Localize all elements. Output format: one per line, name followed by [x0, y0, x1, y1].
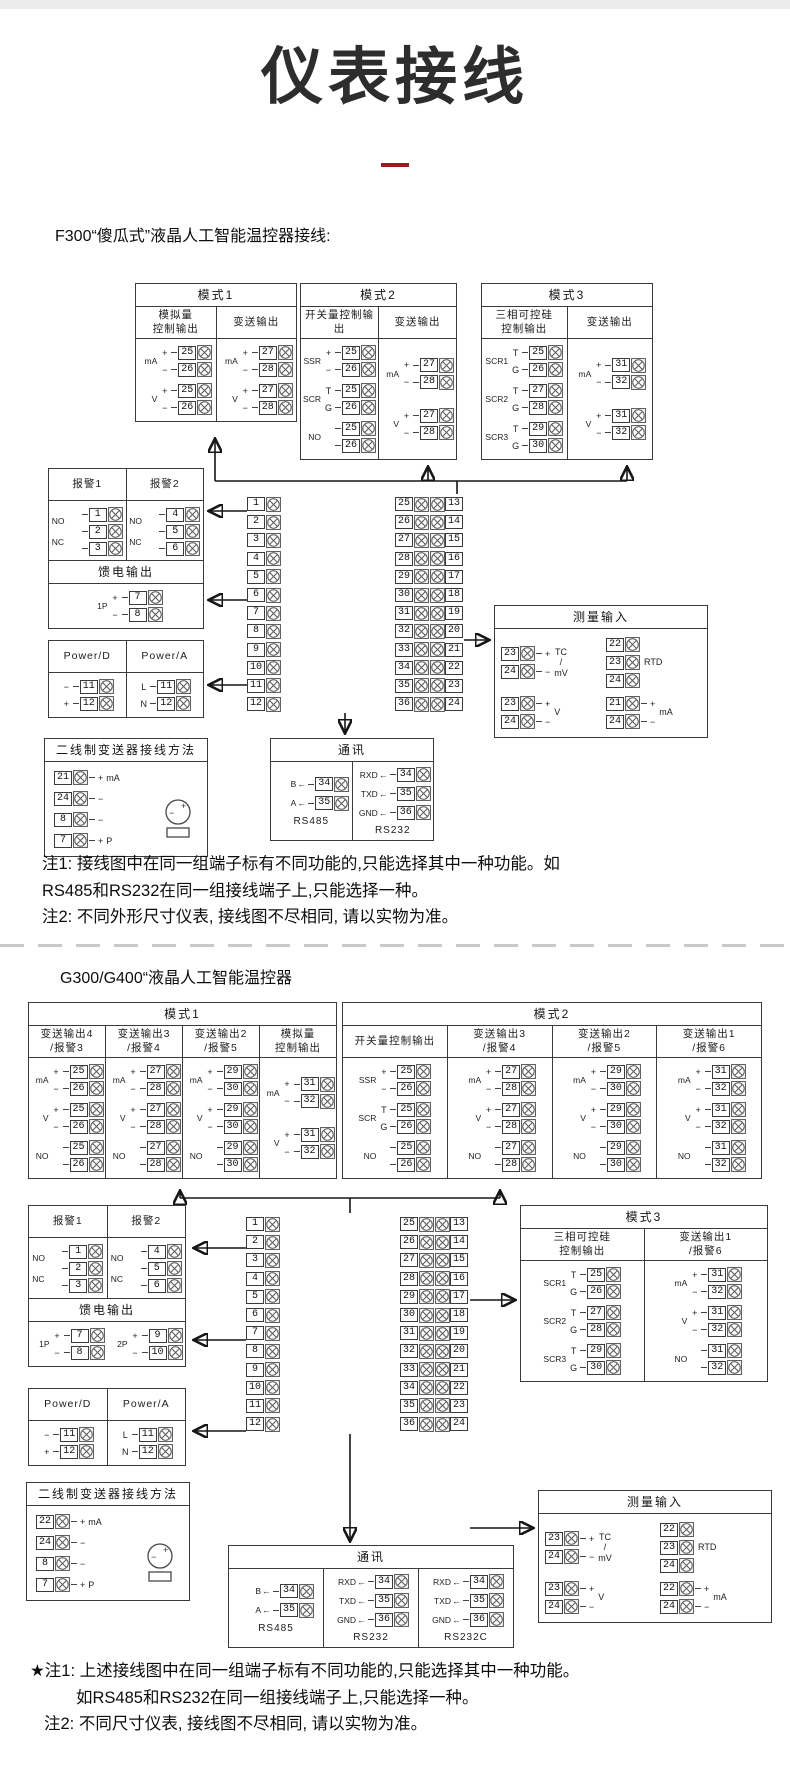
screw-terminal-icon — [266, 697, 281, 712]
terminal-row: 26 — [323, 437, 376, 454]
column-header: 报警2 — [108, 1206, 186, 1238]
terminal-number: 21 — [445, 643, 463, 657]
terminal-row: 19 — [429, 604, 463, 622]
terminal-number: 24 — [501, 715, 519, 729]
terminal-number: 32 — [400, 1344, 418, 1358]
wire-stub — [273, 1591, 279, 1592]
terminal-row: 23 — [429, 677, 463, 695]
wire-stub — [368, 1600, 374, 1601]
panel-column: 1P+7−8 — [49, 584, 203, 628]
wire-stub — [641, 721, 647, 722]
terminal-row: G26 — [568, 1283, 621, 1300]
group-label: NO — [108, 1151, 127, 1161]
terminal-number: 24 — [545, 1600, 563, 1614]
terminal-polarity: − — [689, 1325, 700, 1335]
terminal-polarity: + — [80, 1517, 85, 1527]
terminal-number: 28 — [147, 1120, 165, 1134]
screw-terminal-icon — [679, 1599, 694, 1614]
column-header: 报警1 — [29, 1206, 107, 1238]
terminal-group: 1P+7−8 — [32, 1327, 105, 1361]
wire-stub — [53, 1451, 59, 1452]
screw-terminal-icon — [89, 1102, 104, 1117]
screw-terminal-icon — [430, 588, 445, 603]
screw-terminal-icon — [416, 1119, 431, 1134]
wire-stub — [171, 369, 177, 370]
terminal-row: −30 — [205, 1080, 258, 1097]
terminal-group: NO2526 — [303, 420, 376, 454]
terminal-row: 24 — [429, 695, 463, 713]
screw-terminal-icon — [435, 1380, 450, 1395]
terminal-number: 27 — [420, 358, 438, 372]
panel-column: 变送输出1 /报警6mA+31−32V+31−32NO3132 — [657, 1026, 761, 1178]
terminal-row: 1 — [247, 495, 281, 513]
wire-stub — [701, 1291, 707, 1292]
terminal-row: 27 — [400, 1251, 434, 1269]
terminal-row: 30 — [588, 1156, 641, 1173]
terminal-polarity: + — [98, 773, 103, 783]
terminal-number: 23 — [660, 1541, 678, 1555]
terminal-row: 1 — [70, 506, 123, 523]
terminal-group: V+25−26 — [31, 1101, 104, 1135]
terminal-row: 34 — [395, 659, 429, 677]
wire-stub — [580, 1291, 586, 1292]
terminal-polarity: G — [568, 1363, 579, 1373]
terminal-polarity: − — [545, 667, 550, 677]
g300-mode1-panel: 模式1变送输出4 /报警3mA+25−26V+25−26NO2526变送输出3 … — [28, 1002, 337, 1179]
g300-note-line: 如RS485和RS232在同一组接线端子上,只能选择一种。 — [30, 1685, 774, 1712]
terminal-number: 9 — [149, 1329, 167, 1343]
terminal-number: 31 — [400, 1326, 418, 1340]
screw-terminal-icon — [631, 358, 646, 373]
terminal-tag: P — [106, 836, 112, 846]
terminal-number: 11 — [246, 1399, 264, 1413]
wire-stub — [71, 1584, 77, 1585]
group-label: NONC — [52, 506, 69, 557]
terminal-polarity: − — [545, 717, 550, 727]
terminal-number: 4 — [148, 1245, 166, 1259]
terminal-number: 24 — [450, 1417, 468, 1431]
screw-terminal-icon — [548, 421, 563, 436]
wire-stub — [605, 432, 611, 433]
terminal-row: 31 — [693, 1139, 746, 1156]
terminal-row: 3 — [246, 1251, 280, 1269]
terminal-polarity: + — [130, 1331, 141, 1341]
wire-stub — [701, 1312, 707, 1313]
terminal-number: 25 — [178, 384, 196, 398]
terminal-polarity: G — [568, 1325, 579, 1335]
terminal-number: 35 — [400, 1399, 418, 1413]
screw-terminal-icon — [626, 1064, 641, 1079]
screw-terminal-icon — [73, 812, 88, 827]
group-label: NO — [568, 1151, 587, 1161]
f300-mode1-panel: 模式1模拟量 控制输出mA+25−26V+25−26变送输出mA+27−28V+… — [135, 283, 297, 422]
comm-signal-label: GND — [333, 1615, 356, 1625]
terminal-number: 8 — [246, 1344, 264, 1358]
terminal-row: +27 — [483, 1063, 536, 1080]
screw-terminal-icon — [419, 1253, 434, 1268]
terminal-row: 29 — [205, 1139, 258, 1156]
screw-terminal-icon — [361, 400, 376, 415]
screw-terminal-icon — [265, 1362, 280, 1377]
screw-terminal-icon — [265, 1326, 280, 1341]
box-title: 模式3 — [521, 1206, 767, 1229]
wire-stub — [695, 1606, 701, 1607]
terminal-group: V+31−32 — [669, 1304, 742, 1338]
group-label: 2P — [110, 1339, 129, 1349]
terminal-row: 35 — [400, 1397, 434, 1415]
terminal-number: 24 — [660, 1559, 678, 1573]
terminal-row: N12 — [120, 1443, 173, 1460]
terminal-polarity: − — [704, 1602, 709, 1612]
wire-stub — [89, 840, 95, 841]
screw-terminal-icon — [435, 1253, 450, 1268]
terminal-number: 28 — [147, 1158, 165, 1172]
terminal-row: 8 — [246, 1342, 280, 1360]
screw-terminal-icon — [548, 345, 563, 360]
wire-stub — [536, 671, 542, 672]
screw-terminal-icon — [278, 345, 293, 360]
wire-stub — [605, 415, 611, 416]
comm-signal-label: RXD — [355, 770, 378, 780]
column-header: 变送输出1 /报警6 — [645, 1229, 768, 1261]
wire-stub — [63, 1126, 69, 1127]
box-title: 二线制变送器接线方法 — [45, 739, 207, 762]
terminal-number: 26 — [342, 363, 360, 377]
screw-terminal-icon — [548, 362, 563, 377]
panel-column: 变送输出mA+27−28V+27−28 — [217, 307, 297, 421]
g300-mode2-panel: 模式2开关量控制输出SSR+25−26SCRT25G26NO2526变送输出3 … — [342, 1002, 762, 1179]
column-header: 变送输出2 /报警5 — [183, 1026, 259, 1058]
f300-note-line: RS485和RS232在同一组接线端子上,只能选择一种。 — [42, 878, 764, 905]
terminal-polarity: − — [593, 428, 604, 438]
screw-terminal-icon — [606, 1284, 621, 1299]
wire-stub — [522, 407, 528, 408]
terminal-row: 24− — [545, 1548, 594, 1565]
wire-stub — [695, 1588, 701, 1589]
screw-terminal-icon — [416, 1140, 431, 1155]
wire-stub — [159, 548, 165, 549]
screw-terminal-icon — [419, 1344, 434, 1359]
terminal-number: 27 — [502, 1103, 520, 1117]
comm-signal-label: TXD — [355, 789, 378, 799]
wire-stub — [368, 1619, 374, 1620]
terminal-row: −32 — [593, 424, 646, 441]
column-header: 开关量控制输出 — [343, 1026, 447, 1058]
column-header: 报警2 — [127, 469, 204, 501]
terminal-number: 32 — [301, 1094, 319, 1108]
terminal-number: 31 — [301, 1077, 319, 1091]
terminal-row: −30 — [588, 1118, 641, 1135]
terminal-polarity: + — [593, 411, 604, 421]
terminal-number: 26 — [70, 1082, 88, 1096]
box-title: 模式2 — [301, 284, 456, 307]
terminal-row: 3 — [70, 540, 123, 557]
terminal-number: 12 — [247, 697, 265, 711]
wire-stub — [294, 1101, 300, 1102]
wire-stub — [335, 445, 341, 446]
terminal-row: 27 — [128, 1139, 181, 1156]
terminal-row: 23+ — [501, 695, 550, 712]
group-label: NO — [463, 1151, 482, 1161]
terminal-row: +25 — [51, 1101, 104, 1118]
terminal-polarity: G — [510, 441, 521, 451]
screw-terminal-icon — [625, 637, 640, 652]
terminal-row: 15 — [434, 1251, 468, 1269]
screw-terminal-icon — [334, 777, 349, 792]
terminal-polarity: + — [650, 699, 655, 709]
terminal-polarity: − — [282, 1096, 293, 1106]
group-label: NONC — [129, 506, 146, 557]
wire-stub — [171, 352, 177, 353]
column-header: 变送输出1 /报警6 — [657, 1026, 761, 1058]
terminal-number: 16 — [445, 552, 463, 566]
terminal-number: 12 — [139, 1445, 157, 1459]
screw-terminal-icon — [416, 786, 431, 801]
terminal-row: 5 — [246, 1288, 280, 1306]
terminal-polarity: + — [689, 1308, 700, 1318]
screw-terminal-icon — [394, 1612, 409, 1627]
wire-stub — [150, 703, 156, 704]
screw-terminal-icon — [626, 1140, 641, 1155]
screw-terminal-icon — [265, 1253, 280, 1268]
terminal-row: −28 — [483, 1080, 536, 1097]
terminal-number: 30 — [400, 1308, 418, 1322]
terminal-polarity: T — [510, 348, 521, 358]
terminal-row: A←35 — [238, 1602, 314, 1619]
screw-terminal-icon — [197, 362, 212, 377]
wire-stub — [82, 548, 88, 549]
wire-stub — [335, 390, 341, 391]
column-header: 变送输出 — [568, 307, 653, 339]
terminal-row: 10 — [246, 1379, 280, 1397]
terminal-number: 1 — [246, 1217, 264, 1231]
screw-terminal-icon — [167, 1244, 182, 1259]
panel-column: 变送输出mA+27−28V+27−28 — [379, 307, 456, 459]
terminal-polarity: + — [545, 699, 550, 709]
wire-stub — [368, 1581, 374, 1582]
terminal-group: SCR2T27G28 — [543, 1304, 621, 1338]
screw-terminal-icon — [731, 1157, 746, 1172]
terminal-row: L11 — [138, 678, 191, 695]
top-gray-bar — [0, 0, 790, 9]
terminal-number: 12 — [60, 1445, 78, 1459]
group-label: mA — [185, 1075, 204, 1085]
terminal-row: 4 — [246, 1270, 280, 1288]
terminal-number: 18 — [450, 1308, 468, 1322]
group-label: mA — [262, 1088, 281, 1098]
terminal-number: 26 — [178, 401, 196, 415]
wire-stub — [390, 1071, 396, 1072]
terminal-row: 24− — [501, 713, 550, 730]
terminal-number: 7 — [71, 1329, 89, 1343]
terminal-polarity: + — [483, 1067, 494, 1077]
screw-terminal-icon — [521, 1140, 536, 1155]
terminal-group: V+29−30 — [185, 1101, 258, 1135]
panel-column: 开关量控制输出SSR+25−26SCRT25G26NO2526 — [343, 1026, 448, 1178]
wire-stub — [522, 428, 528, 429]
screw-terminal-icon — [679, 1540, 694, 1555]
terminal-group: SCR3T29G30 — [543, 1342, 621, 1376]
column-header: 变送输出 — [217, 307, 297, 339]
screw-terminal-icon — [727, 1322, 742, 1337]
terminal-number: 28 — [147, 1082, 165, 1096]
screw-terminal-icon — [731, 1140, 746, 1155]
strip-column: 131415161718192021222324 — [434, 1215, 468, 1433]
terminal-row: 26 — [395, 513, 429, 531]
terminal-number: 5 — [166, 525, 184, 539]
terminal-number: 2 — [89, 525, 107, 539]
terminal-row: T25 — [323, 382, 376, 399]
wire-stub — [390, 774, 396, 775]
screw-terminal-icon — [548, 383, 563, 398]
terminal-number: 5 — [247, 570, 265, 584]
screw-terminal-icon — [55, 1577, 70, 1592]
terminal-number: 31 — [708, 1306, 726, 1320]
terminal-number: 30 — [607, 1120, 625, 1134]
panel-column: 1P+7−8 — [29, 1322, 107, 1366]
wire-stub — [171, 390, 177, 391]
terminal-row: 26 — [51, 1156, 104, 1173]
terminal-group: SCR2T27G28 — [485, 382, 563, 416]
terminal-polarity: T — [568, 1308, 579, 1318]
screw-terminal-icon — [278, 400, 293, 415]
comm-group: B←34A←35RS485 — [229, 1569, 324, 1647]
screw-terminal-icon — [435, 1289, 450, 1304]
terminal-row: G30 — [510, 437, 563, 454]
terminal-number: 14 — [450, 1235, 468, 1249]
terminal-row: −28 — [128, 1080, 181, 1097]
measure-group: 23+24−TC / mV — [545, 1521, 650, 1574]
terminal-number: 6 — [166, 542, 184, 556]
terminal-group: V+31−32 — [573, 407, 646, 441]
wire-stub — [273, 1610, 279, 1611]
terminal-number: 15 — [445, 533, 463, 547]
screw-terminal-icon — [79, 1444, 94, 1459]
wire-stub — [522, 390, 528, 391]
terminal-polarity: + — [159, 386, 170, 396]
terminal-row: T29 — [510, 420, 563, 437]
terminal-row: 14 — [429, 513, 463, 531]
wire-stub — [580, 1538, 586, 1539]
terminal-group: mA+27−28 — [463, 1063, 536, 1097]
terminal-row: 9 — [247, 641, 281, 659]
terminal-row: 13 — [434, 1215, 468, 1233]
screw-terminal-icon — [197, 383, 212, 398]
wire-stub — [159, 514, 165, 515]
measure-input-type-label: TC / mV — [554, 647, 568, 678]
screw-terminal-icon — [548, 438, 563, 453]
panel-column: 变送输出1 /报警6mA+31−32V+31−32NO3132 — [645, 1229, 768, 1381]
measure-input-type-label: V — [598, 1592, 604, 1602]
screw-terminal-icon — [414, 533, 429, 548]
terminal-row: −28 — [128, 1118, 181, 1135]
terminal-number: 11 — [247, 679, 265, 693]
terminal-number: 30 — [587, 1361, 605, 1375]
terminal-number: 31 — [708, 1344, 726, 1358]
terminal-row: 5 — [129, 1260, 182, 1277]
terminal-number: 2 — [246, 1235, 264, 1249]
screw-terminal-icon — [320, 1077, 335, 1092]
box-title: 馈电输出 — [49, 561, 203, 584]
terminal-polarity: + — [98, 836, 103, 846]
terminal-polarity: − — [650, 717, 655, 727]
strip-column: 123456789101112 — [247, 495, 281, 713]
g300-notes: ★注1: 上述接线图中在同一组端子标有不同功能的,只能选择其中一种功能。 如RS… — [30, 1658, 774, 1738]
terminal-row: 30 — [395, 586, 429, 604]
arrow-left-icon: ← — [297, 779, 306, 789]
wire-stub — [705, 1164, 711, 1165]
terminal-row: G28 — [510, 399, 563, 416]
screw-terminal-icon — [679, 1522, 694, 1537]
terminal-row: −32 — [282, 1143, 335, 1160]
screw-terminal-icon — [394, 1574, 409, 1589]
wire-stub — [463, 1581, 469, 1582]
terminal-group: V+27−28 — [381, 407, 454, 441]
terminal-row: 25 — [51, 1139, 104, 1156]
terminal-row: +12 — [41, 1443, 94, 1460]
panel-column: 三相可控硅 控制输出SCR1T25G26SCR2T27G28SCR3T29G30 — [482, 307, 568, 459]
terminal-number: 11 — [157, 680, 175, 694]
terminal-number: 27 — [147, 1103, 165, 1117]
panel-column: 报警2NONC456 — [108, 1206, 186, 1299]
terminal-row: +27 — [128, 1063, 181, 1080]
wire-stub — [122, 597, 128, 598]
terminal-row: G26 — [323, 399, 376, 416]
comm-group: B←34A←35RS485 — [271, 762, 353, 840]
terminal-number: 26 — [342, 439, 360, 453]
g300-mode3-panel: 模式3三相可控硅 控制输出SCR1T25G26SCR2T27G28SCR3T29… — [520, 1205, 768, 1382]
group-label-part: NC — [52, 537, 68, 547]
terminal-number: 27 — [147, 1141, 165, 1155]
terminal-number: 29 — [529, 422, 547, 436]
screw-terminal-icon — [606, 1305, 621, 1320]
terminal-number: 6 — [247, 588, 265, 602]
comm-signal-label: GND — [355, 808, 378, 818]
terminal-polarity: T — [323, 386, 334, 396]
g300-measure-input-panel: 测量输入23+24−TC / mV222324RTD23+24−V22+24−m… — [538, 1490, 772, 1623]
column-header: Power/D — [29, 1389, 107, 1421]
group-label: mA — [31, 1075, 50, 1085]
screw-terminal-icon — [419, 1235, 434, 1250]
wire-stub — [294, 1151, 300, 1152]
terminal-row: 24− — [501, 663, 550, 680]
terminal-polarity: + — [52, 1331, 63, 1341]
screw-terminal-icon — [108, 541, 123, 556]
screw-terminal-icon — [265, 1217, 280, 1232]
comm-signal-label: B — [238, 1586, 261, 1596]
terminal-number: 7 — [129, 591, 147, 605]
terminal-row: 23+ — [501, 645, 550, 662]
wire-stub — [71, 1521, 77, 1522]
terminal-number: 24 — [606, 715, 624, 729]
column-header: Power/A — [127, 641, 204, 673]
screw-terminal-icon — [435, 1326, 450, 1341]
terminal-row: 6 — [129, 1277, 182, 1294]
terminal-polarity: − — [52, 1348, 63, 1358]
wire-stub — [132, 1451, 138, 1452]
group-label: V — [139, 394, 158, 404]
terminal-tag: mA — [88, 1517, 102, 1527]
screw-terminal-icon — [90, 1328, 105, 1343]
terminal-number: 24 — [660, 1600, 678, 1614]
terminal-polarity: − — [98, 815, 103, 825]
terminal-number: 28 — [420, 375, 438, 389]
wire-stub — [140, 1126, 146, 1127]
wire-stub — [580, 1588, 586, 1589]
wire-stub — [605, 382, 611, 383]
screw-terminal-icon — [430, 606, 445, 621]
terminal-number: 30 — [607, 1158, 625, 1172]
